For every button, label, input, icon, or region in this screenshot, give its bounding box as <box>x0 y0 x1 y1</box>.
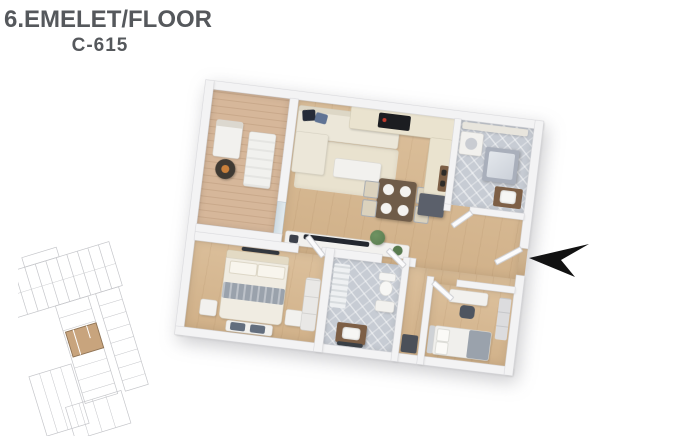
plan-header: 6.EMELET/FLOOR C-615 <box>4 6 196 57</box>
page: { "header": { "title": "6.EMELET/FLOOR",… <box>0 0 692 435</box>
sofa-chaise <box>292 131 329 175</box>
wall-shower-bottom-left <box>444 204 451 211</box>
shelf-decor-frame <box>440 180 446 187</box>
kitchen-tall-cabinet <box>417 193 445 218</box>
building-site-plan <box>18 241 150 436</box>
dining-chair <box>361 199 378 218</box>
bed2-blanket <box>466 330 491 360</box>
shelf-decor-frame <box>441 169 447 176</box>
site-plan-highlighted-unit <box>65 323 103 357</box>
nightstand-right <box>285 310 303 327</box>
dining-chair <box>363 180 380 199</box>
corridor-shaft <box>400 334 418 354</box>
bathroom-cabinet <box>375 300 394 312</box>
entrance-arrow-icon <box>529 244 591 278</box>
nightstand-left <box>199 299 217 316</box>
speaker-box <box>289 234 299 243</box>
shower-room-basin <box>499 190 516 205</box>
apartment-floor-plan <box>175 80 544 376</box>
bench-cushion <box>230 322 246 332</box>
dining-table <box>374 178 417 222</box>
floor-title: 6.EMELET/FLOOR <box>4 6 196 34</box>
unit-code: C-615 <box>4 35 196 57</box>
bedroom2-desk-chair <box>459 305 475 320</box>
site-plan-upper-wing <box>18 241 122 318</box>
bed2-pillow <box>434 341 448 355</box>
shower-tray <box>486 151 515 180</box>
bathroom-basin <box>342 327 361 341</box>
bench-cushion <box>250 324 266 334</box>
balcony-armchair <box>213 120 243 159</box>
